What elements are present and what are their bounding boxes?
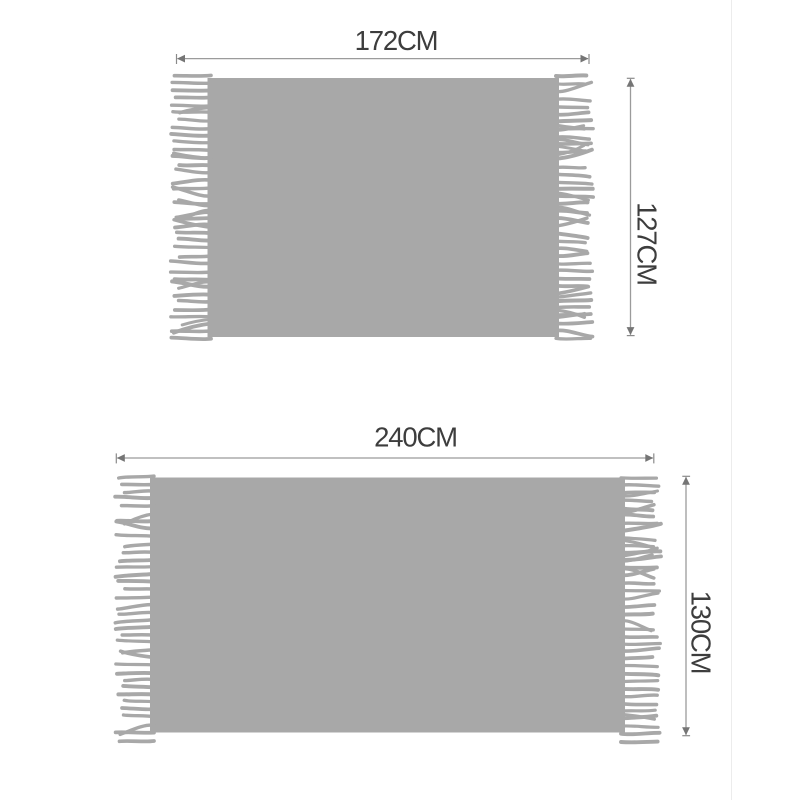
svg-text:127CM: 127CM: [632, 202, 663, 285]
svg-text:240CM: 240CM: [374, 422, 457, 453]
svg-text:172CM: 172CM: [355, 25, 438, 56]
svg-text:130CM: 130CM: [686, 591, 717, 674]
